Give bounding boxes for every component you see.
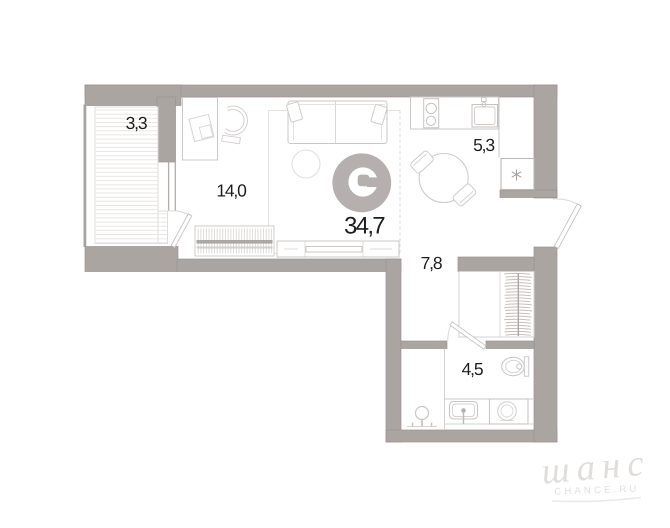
svg-text:34,7: 34,7 <box>344 212 385 239</box>
svg-text:7,8: 7,8 <box>421 253 442 273</box>
svg-text:5,3: 5,3 <box>473 135 494 155</box>
svg-text:3,3: 3,3 <box>126 113 147 133</box>
svg-text:14,0: 14,0 <box>216 180 247 200</box>
svg-text:4,5: 4,5 <box>462 359 483 379</box>
